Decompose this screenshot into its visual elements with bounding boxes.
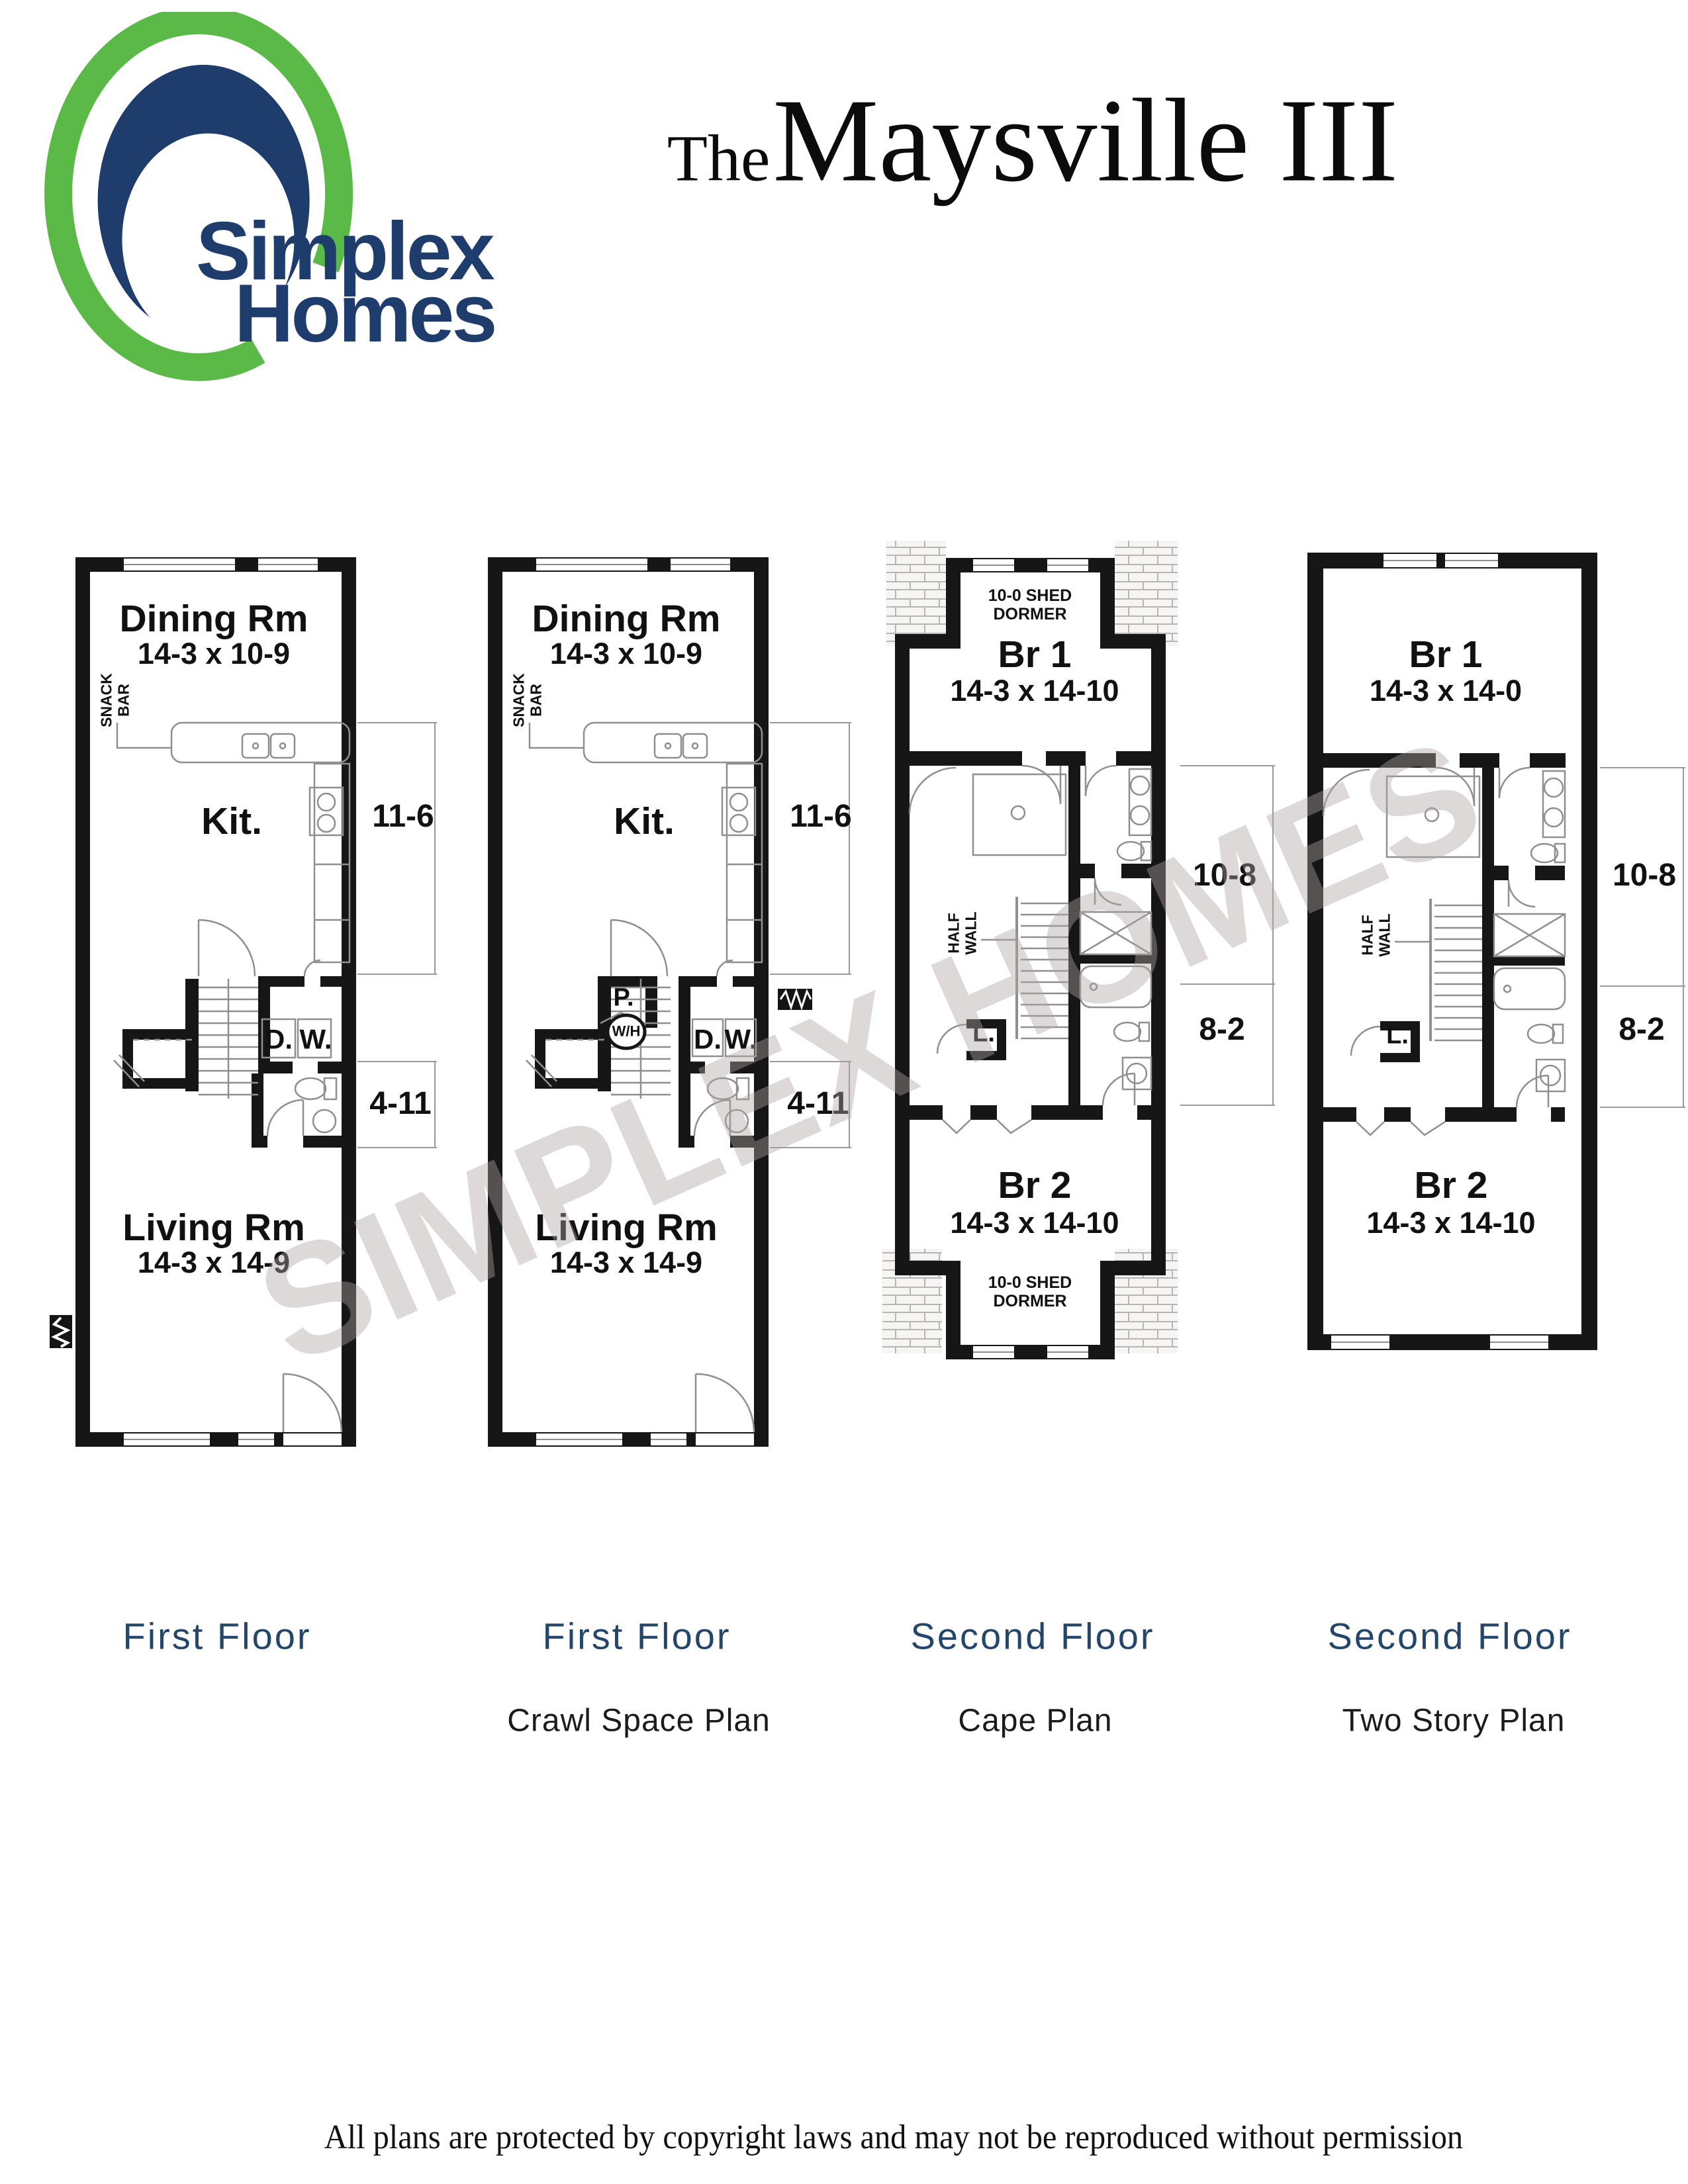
cape-plan-drawing — [874, 529, 1304, 1469]
caption-second-floor-cape: Second Floor — [910, 1615, 1154, 1658]
floor-plan-second-floor-cape: 10-0 SHED DORMER Br 1 14-3 x 14-10 HALF … — [874, 529, 1304, 1469]
bedroom2-label: Br 2 — [998, 1165, 1072, 1207]
floor-plan-sheet: Simplex Homes The Maysville III SIMPLEX … — [0, 0, 1688, 2184]
washer-label: W. — [300, 1023, 332, 1054]
lower-dimension: 8-2 — [1618, 1012, 1664, 1048]
copyright-notice: All plans are protected by copyright law… — [0, 2118, 1688, 2157]
lower-dimension: 8-2 — [1199, 1012, 1244, 1048]
caption-first-floor-a: First Floor — [123, 1615, 312, 1658]
living-room-dims: 14-3 x 14-9 — [550, 1246, 702, 1279]
snack-bar-label: SNACK BAR — [510, 670, 545, 731]
bedroom1-label: Br 1 — [1409, 634, 1483, 676]
subcaption-crawl-space-plan: Crawl Space Plan — [507, 1703, 771, 1739]
kitchen-label: Kit. — [614, 801, 675, 843]
subcaption-cape-plan: Cape Plan — [958, 1703, 1112, 1739]
bath-dimension: 4-11 — [787, 1086, 849, 1122]
floor-plan-second-floor-two-story: Br 1 14-3 x 14-0 HALF WALL L. 10-8 8-2 B… — [1284, 529, 1688, 1469]
kitchen-dimension: 11-6 — [372, 799, 434, 835]
dining-room-dims: 14-3 x 10-9 — [138, 637, 290, 670]
washer-label: W. — [725, 1023, 757, 1054]
dryer-label: D. — [265, 1023, 293, 1054]
floor-plan-first-floor-crawl-space: Dining Rm 14-3 x 10-9 SNACK BAR Kit. P. … — [450, 549, 880, 1469]
kitchen-dimension: 11-6 — [790, 799, 851, 835]
kitchen-label: Kit. — [201, 801, 262, 843]
snack-bar-label: SNACK BAR — [98, 670, 132, 731]
dining-room-dims: 14-3 x 10-9 — [550, 637, 702, 670]
shed-dormer-bottom-label: 10-0 SHED DORMER — [977, 1273, 1083, 1310]
bedroom2-label: Br 2 — [1415, 1165, 1488, 1207]
dryer-label: D. — [694, 1023, 722, 1054]
bedroom2-dims: 14-3 x 14-10 — [950, 1206, 1119, 1240]
half-wall-label: HALF WALL — [945, 904, 980, 962]
half-wall-label: HALF WALL — [1359, 906, 1393, 964]
bedroom1-dims: 14-3 x 14-10 — [950, 674, 1119, 707]
caption-second-floor-two-story: Second Floor — [1327, 1615, 1571, 1658]
living-room-label: Living Rm — [535, 1207, 718, 1250]
living-room-label: Living Rm — [122, 1207, 305, 1250]
bedroom1-dims: 14-3 x 14-0 — [1370, 674, 1522, 707]
dining-room-label: Dining Rm — [532, 598, 721, 641]
two-story-plan-drawing — [1284, 529, 1688, 1469]
pantry-label: P. — [613, 984, 633, 1013]
upper-dimension: 10-8 — [1613, 858, 1676, 893]
logo-word-homes: Homes — [234, 273, 494, 355]
title-prefix: The — [667, 122, 770, 195]
title-name: Maysville III — [773, 75, 1398, 206]
floor-plan-first-floor: Dining Rm 14-3 x 10-9 SNACK BAR Kit. D. … — [40, 549, 450, 1469]
page-title: The Maysville III — [667, 72, 1398, 209]
subcaption-two-story-plan: Two Story Plan — [1342, 1703, 1566, 1739]
linen-closet-label: L. — [1386, 1022, 1409, 1050]
bedroom1-label: Br 1 — [998, 634, 1072, 676]
water-heater-label: W/H — [612, 1024, 641, 1040]
linen-closet-label: L. — [972, 1020, 995, 1048]
dining-room-label: Dining Rm — [120, 598, 308, 641]
bath-dimension: 4-11 — [369, 1086, 431, 1122]
upper-dimension: 10-8 — [1193, 858, 1256, 893]
copyright-text: All plans are protected by copyright law… — [324, 2118, 1463, 2157]
living-room-dims: 14-3 x 14-9 — [138, 1246, 290, 1279]
shed-dormer-top-label: 10-0 SHED DORMER — [977, 586, 1083, 623]
caption-first-floor-crawl: First Floor — [543, 1615, 731, 1658]
bedroom2-dims: 14-3 x 14-10 — [1366, 1206, 1535, 1240]
